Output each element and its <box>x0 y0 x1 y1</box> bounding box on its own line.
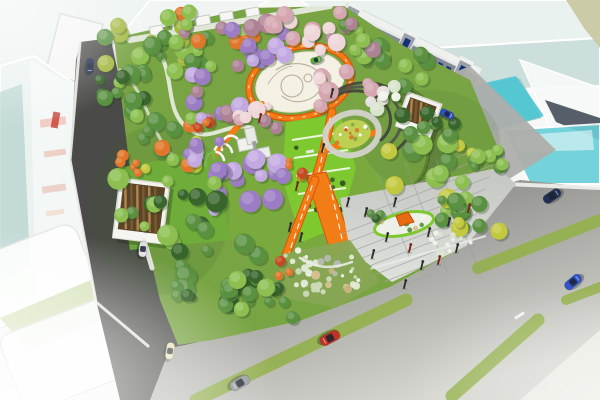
speckle <box>349 132 352 135</box>
tree-highlight <box>493 145 499 151</box>
tree-highlight <box>421 107 429 115</box>
tree-highlight <box>382 144 391 153</box>
tree-highlight <box>320 83 331 94</box>
tree-highlight <box>456 176 464 184</box>
speckle <box>413 226 418 231</box>
tree-highlight <box>372 215 377 220</box>
tree-highlight <box>441 154 450 163</box>
tree-highlight <box>357 34 365 42</box>
tree-highlight <box>163 176 169 182</box>
tree-highlight <box>233 98 243 108</box>
tree-highlight <box>404 127 413 136</box>
tree-highlight <box>315 100 323 108</box>
tree-highlight <box>416 73 423 80</box>
speckle <box>451 238 455 242</box>
tree-highlight <box>392 93 397 98</box>
speckle <box>295 268 302 275</box>
tree-highlight <box>286 269 290 273</box>
kiosk <box>245 7 259 17</box>
tree-highlight <box>155 141 164 150</box>
tree-highlight <box>148 113 159 124</box>
person-head <box>456 243 459 246</box>
person-head <box>438 255 441 258</box>
tree-highlight <box>287 32 295 40</box>
tree-highlight <box>276 257 282 263</box>
tree-highlight <box>434 166 443 175</box>
person-head <box>322 143 325 146</box>
speckle <box>450 232 456 238</box>
tree-highlight <box>133 160 137 164</box>
speckle <box>340 180 346 186</box>
tree-highlight <box>269 39 278 48</box>
person-head <box>409 243 412 246</box>
tree-highlight <box>396 109 405 118</box>
speckle <box>324 255 331 262</box>
tree-highlight <box>186 68 195 77</box>
tree-highlight <box>365 83 374 92</box>
speckle <box>419 223 423 227</box>
tree-highlight <box>211 163 220 172</box>
tree-highlight <box>208 192 220 204</box>
tree-highlight <box>196 69 205 78</box>
tree-highlight <box>454 218 460 224</box>
tree-highlight <box>245 20 255 30</box>
kiosk <box>219 11 233 21</box>
tree-highlight <box>269 155 280 166</box>
tree-highlight <box>298 168 304 174</box>
tree-highlight <box>167 122 176 131</box>
speckle <box>305 255 308 258</box>
speckle <box>355 128 359 132</box>
tree-highlight <box>209 177 217 185</box>
tree-highlight <box>138 133 145 140</box>
tree-highlight <box>315 73 322 80</box>
speckle <box>344 128 347 131</box>
person-head <box>428 227 431 230</box>
speckle <box>321 289 326 294</box>
speckle <box>433 230 438 235</box>
tree-highlight <box>264 190 276 202</box>
person-head <box>300 232 303 235</box>
tree-highlight <box>473 197 482 206</box>
tree-highlight <box>179 190 185 196</box>
park-aerial-rendering <box>0 0 600 400</box>
tree-highlight <box>226 23 235 32</box>
tree-highlight <box>118 151 125 158</box>
tree-highlight <box>271 21 278 28</box>
speckle <box>326 276 332 282</box>
tree-highlight <box>182 19 189 26</box>
tree-highlight <box>286 158 290 162</box>
tree-highlight <box>259 280 269 290</box>
speckle <box>356 278 360 282</box>
tree-highlight <box>186 113 193 120</box>
tree-highlight <box>305 26 314 35</box>
person-head <box>386 232 389 235</box>
tree-highlight <box>195 124 200 129</box>
tree-highlight <box>275 272 280 277</box>
tree-highlight <box>168 154 175 161</box>
tree-highlight <box>144 126 150 132</box>
tree-highlight <box>415 48 423 56</box>
speckle <box>311 270 320 279</box>
tree-highlight <box>366 97 372 103</box>
tree-highlight <box>497 159 504 166</box>
tree-highlight <box>472 150 480 158</box>
tree-highlight <box>248 56 255 63</box>
speckle <box>459 236 463 240</box>
speckle <box>349 270 352 273</box>
tree-highlight <box>116 158 122 164</box>
speckle <box>339 133 342 136</box>
tree-highlight <box>474 220 482 228</box>
person-head <box>394 197 397 200</box>
tree-highlight <box>187 215 196 224</box>
tree-highlight <box>203 119 207 123</box>
tree-highlight <box>334 7 341 14</box>
tree-highlight <box>110 170 122 182</box>
tree-highlight <box>277 169 286 178</box>
tree-highlight <box>140 222 146 228</box>
tree-highlight <box>202 246 208 252</box>
tree-highlight <box>444 128 452 136</box>
speckle <box>448 249 452 253</box>
speckle <box>341 274 344 277</box>
tree-highlight <box>286 162 290 166</box>
tree-highlight <box>438 196 443 201</box>
tree-highlight <box>243 39 251 47</box>
speckle <box>295 247 301 253</box>
speckle <box>352 282 360 290</box>
tree-highlight <box>256 170 263 177</box>
tree-highlight <box>418 122 426 130</box>
tree-highlight <box>367 210 372 215</box>
tree-highlight <box>142 164 147 169</box>
tree-highlight <box>241 192 253 204</box>
speckle <box>349 254 354 259</box>
tree-highlight <box>230 272 240 282</box>
tree-highlight <box>492 224 501 233</box>
tree-highlight <box>170 36 178 44</box>
tree-highlight <box>389 81 396 88</box>
speckle <box>294 145 298 149</box>
speckle <box>354 275 358 279</box>
tree-highlight <box>215 137 221 143</box>
tree-highlight <box>190 139 198 147</box>
tree-highlight <box>236 235 247 246</box>
speckle <box>294 282 299 287</box>
tree-highlight <box>134 169 139 174</box>
person-head <box>448 217 451 220</box>
speckle <box>330 177 335 182</box>
tree-highlight <box>198 223 207 232</box>
tree-highlight <box>340 65 348 73</box>
rendering-stage: Bird's-eye rendering of a landscaped cit… <box>0 0 600 400</box>
tree-highlight <box>449 194 459 204</box>
tree-highlight <box>190 189 200 199</box>
tree-highlight <box>189 154 197 162</box>
speckle <box>301 264 309 272</box>
tree-highlight <box>233 60 240 67</box>
tree-highlight <box>346 18 353 25</box>
tree-highlight <box>261 50 270 59</box>
speckle <box>332 271 337 276</box>
person-head <box>331 88 334 91</box>
person-head <box>372 249 375 252</box>
speckle <box>349 135 353 139</box>
tree-highlight <box>324 23 331 30</box>
person-head <box>365 207 368 210</box>
speckle <box>284 254 288 258</box>
tree-highlight <box>206 61 212 67</box>
speckle <box>317 258 324 265</box>
tree-highlight <box>387 178 397 188</box>
speckle <box>325 281 332 288</box>
tree-highlight <box>159 226 170 237</box>
speckle <box>469 240 473 244</box>
tree-highlight <box>126 93 136 103</box>
tree-highlight <box>350 45 356 51</box>
person-head <box>347 197 350 200</box>
tree-highlight <box>115 209 123 217</box>
tree-highlight <box>280 297 286 303</box>
tree-highlight <box>436 214 444 222</box>
person-head <box>296 181 299 184</box>
tree-highlight <box>221 106 230 115</box>
speckle <box>311 287 317 293</box>
tree-highlight <box>155 196 162 203</box>
tree-highlight <box>287 312 294 319</box>
tree-highlight <box>250 102 260 112</box>
person-head <box>421 260 424 263</box>
tree-highlight <box>197 113 203 119</box>
speckle <box>353 137 357 141</box>
tree-highlight <box>278 7 287 16</box>
tree-highlight <box>192 87 199 94</box>
speckle <box>344 286 352 294</box>
tree-highlight <box>186 54 195 63</box>
tree-highlight <box>379 92 385 98</box>
speckle <box>445 242 450 247</box>
tree-highlight <box>278 48 287 57</box>
speckle <box>335 140 340 145</box>
tree-highlight <box>168 64 177 73</box>
speckle <box>315 282 322 289</box>
person-head <box>404 279 407 282</box>
speckle <box>303 291 309 297</box>
speckle <box>359 133 362 136</box>
speckle <box>407 227 412 232</box>
speckle <box>301 280 309 288</box>
tree-highlight <box>400 60 408 68</box>
speckle <box>420 215 425 220</box>
tree-highlight <box>131 110 139 118</box>
tree-highlight <box>192 35 200 43</box>
tree-highlight <box>316 45 322 51</box>
tree-highlight <box>471 163 475 167</box>
tree-highlight <box>330 35 340 45</box>
speckle <box>351 123 355 127</box>
tree-highlight <box>217 22 224 29</box>
tree-highlight <box>183 6 191 14</box>
speckle <box>290 259 296 265</box>
tree-highlight <box>248 151 259 162</box>
speckle <box>363 125 367 129</box>
person-head <box>289 222 292 225</box>
tree-highlight <box>241 113 248 120</box>
person-head <box>468 203 471 206</box>
person-head <box>259 113 262 116</box>
tree-highlight <box>371 103 379 111</box>
tree-highlight <box>251 271 258 278</box>
tree-highlight <box>243 287 251 295</box>
